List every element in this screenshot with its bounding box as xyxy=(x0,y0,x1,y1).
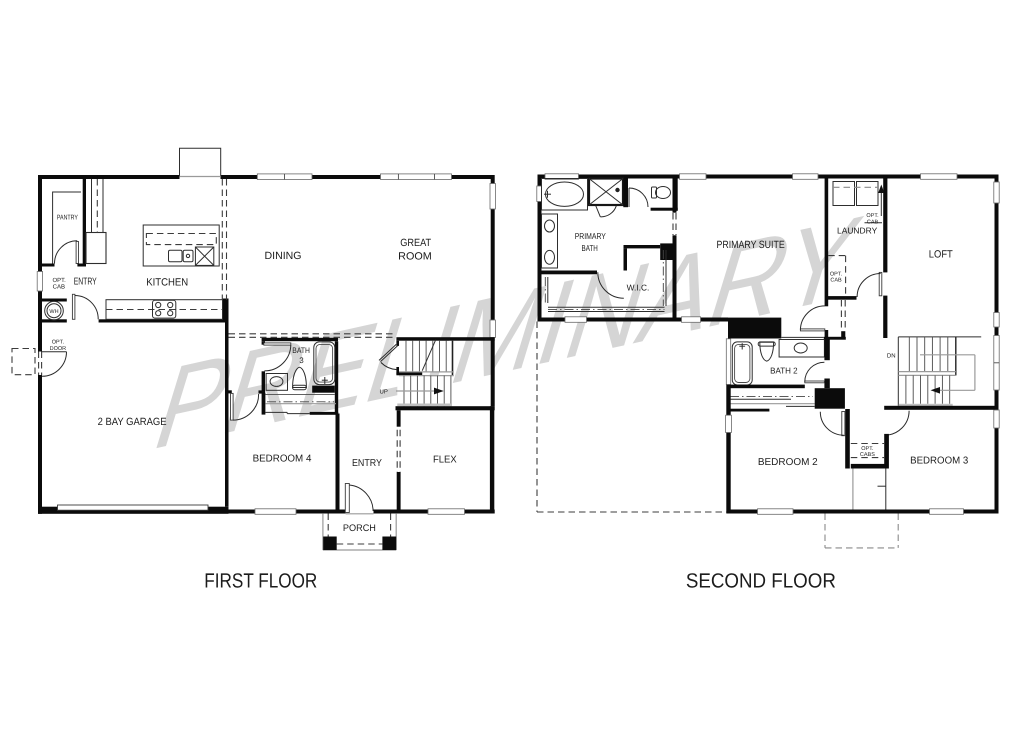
svg-text:LAUNDRY: LAUNDRY xyxy=(837,225,878,235)
svg-text:OPT.: OPT. xyxy=(866,213,879,219)
svg-text:CABS: CABS xyxy=(860,452,875,458)
svg-text:PRIMARY: PRIMARY xyxy=(575,231,606,241)
svg-text:SECOND FLOOR: SECOND FLOOR xyxy=(686,569,836,592)
svg-text:PRIMARY SUITE: PRIMARY SUITE xyxy=(716,239,784,251)
svg-text:OPT.: OPT. xyxy=(52,340,65,346)
svg-text:KITCHEN: KITCHEN xyxy=(146,276,188,288)
svg-text:CAB: CAB xyxy=(867,219,879,225)
svg-text:W.I.C.: W.I.C. xyxy=(627,283,650,293)
svg-text:CAB: CAB xyxy=(830,277,842,283)
svg-text:ENTRY: ENTRY xyxy=(74,277,97,288)
svg-text:FIRST FLOOR: FIRST FLOOR xyxy=(204,569,317,592)
svg-text:BEDROOM 4: BEDROOM 4 xyxy=(253,453,312,464)
svg-text:ROOM: ROOM xyxy=(398,250,432,262)
svg-text:CAB: CAB xyxy=(53,283,65,290)
svg-text:BATH: BATH xyxy=(292,346,310,355)
svg-text:DINING: DINING xyxy=(265,250,302,262)
svg-text:DN: DN xyxy=(887,352,896,359)
svg-text:BATH: BATH xyxy=(582,243,598,253)
svg-text:OPT.: OPT. xyxy=(861,446,874,452)
svg-text:ENTRY: ENTRY xyxy=(352,458,382,469)
svg-text:2 BAY GARAGE: 2 BAY GARAGE xyxy=(98,416,167,428)
svg-text:3: 3 xyxy=(299,356,304,365)
svg-text:BEDROOM 3: BEDROOM 3 xyxy=(910,456,969,467)
svg-text:PANTRY: PANTRY xyxy=(57,215,78,222)
svg-text:WH: WH xyxy=(49,309,58,315)
svg-text:UP: UP xyxy=(380,388,388,395)
svg-text:GREAT: GREAT xyxy=(400,237,432,249)
svg-text:BATH 2: BATH 2 xyxy=(770,366,798,376)
svg-text:DOOR: DOOR xyxy=(50,346,67,352)
svg-text:OPT.: OPT. xyxy=(53,277,67,284)
svg-text:BEDROOM 2: BEDROOM 2 xyxy=(758,457,818,468)
svg-text:PORCH: PORCH xyxy=(343,523,376,534)
svg-text:FLEX: FLEX xyxy=(433,455,457,466)
svg-text:LOFT: LOFT xyxy=(929,249,954,261)
